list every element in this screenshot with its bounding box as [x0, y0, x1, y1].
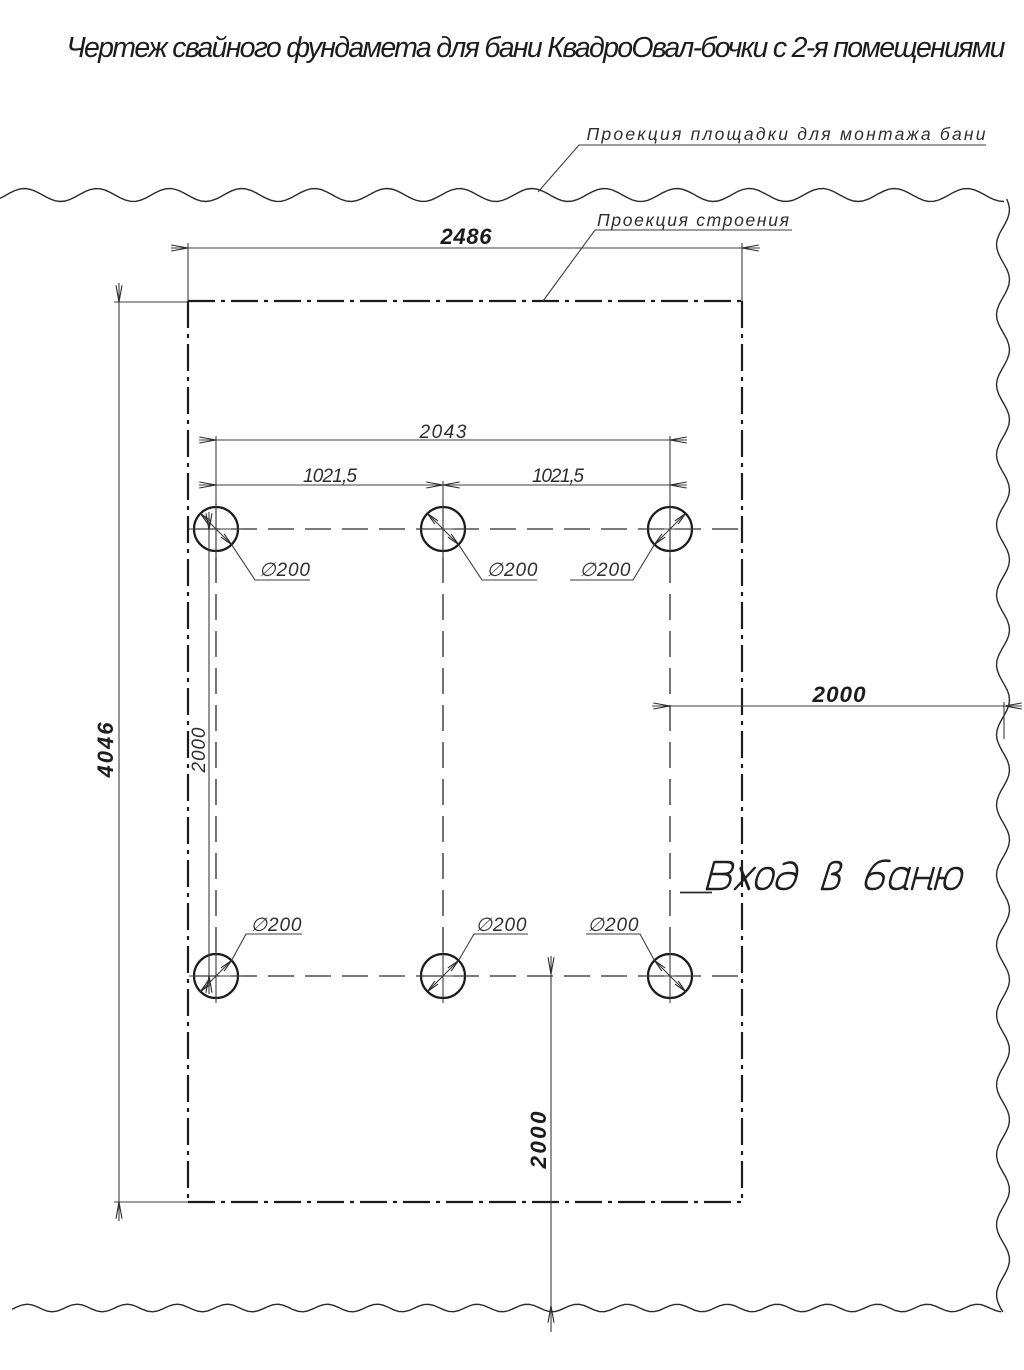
svg-text:4046: 4046 [93, 722, 118, 779]
svg-text:1021,5: 1021,5 [303, 466, 357, 487]
svg-text:2000: 2000 [526, 1111, 551, 1169]
svg-text:Проекция строения: Проекция строения [597, 210, 789, 230]
svg-text:2486: 2486 [440, 224, 493, 249]
svg-text:2000: 2000 [189, 727, 210, 773]
svg-text:∅200: ∅200 [580, 560, 631, 581]
svg-text:2000: 2000 [812, 682, 866, 707]
svg-text:Проекция площадки для монтажа: Проекция площадки для монтажа бани [587, 124, 986, 144]
svg-text:Чертеж свайного фундамета для: Чертеж свайного фундамета для бани Квадр… [67, 32, 1006, 64]
svg-text:∅200: ∅200 [259, 560, 310, 581]
svg-text:∅200: ∅200 [487, 560, 538, 581]
svg-text:1021,5: 1021,5 [532, 466, 584, 487]
svg-text:∅200: ∅200 [588, 915, 639, 936]
svg-text:∅200: ∅200 [476, 915, 527, 936]
svg-text:∅200: ∅200 [251, 915, 302, 936]
